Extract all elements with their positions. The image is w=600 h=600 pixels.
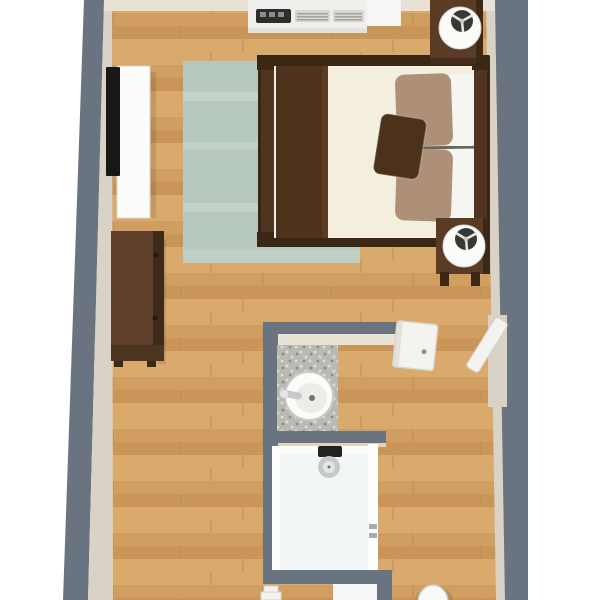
bathroom-top-wall <box>263 322 398 334</box>
tv-console <box>117 66 150 218</box>
nightstand-leg <box>440 272 449 286</box>
faucet-base <box>280 390 288 398</box>
table-lamp-bottom <box>443 225 485 267</box>
shower-glass-panel <box>368 444 378 572</box>
floorplan-render <box>0 0 600 600</box>
sheet-crease <box>415 147 477 148</box>
bathroom-top-wall-face <box>263 334 398 345</box>
ac-vent-slat <box>335 16 362 18</box>
dresser-front <box>111 345 164 361</box>
ac-button <box>278 12 284 17</box>
ac-vent-slat <box>335 13 362 15</box>
table-lamp-top <box>439 7 481 49</box>
ac-vent-slat <box>335 19 362 21</box>
ac-button <box>269 12 275 17</box>
accent-pillow <box>372 113 427 180</box>
dresser-side <box>153 231 164 361</box>
nightstand-leg <box>471 272 480 286</box>
wall-tv <box>106 67 120 176</box>
floorplan-canvas <box>0 0 600 600</box>
ac-vent-slat <box>297 16 328 18</box>
ac-vent-slat <box>297 13 328 15</box>
bathroom-door <box>392 321 438 371</box>
shower-curb <box>272 446 280 570</box>
glass-hinge <box>369 533 377 538</box>
sink-drain <box>309 395 315 401</box>
dresser-handle <box>154 253 159 258</box>
bathroom-wall-pillar <box>377 584 392 600</box>
ac-body-edge <box>248 28 367 33</box>
rug-streak <box>183 250 360 263</box>
bathroom-mid-wall <box>263 431 386 443</box>
bathroom-bottom-wall <box>263 570 392 584</box>
dresser-handle <box>153 316 158 321</box>
bed-post <box>257 55 274 70</box>
shower-head-dot <box>328 466 331 469</box>
brown-blanket <box>276 66 328 238</box>
ac-button <box>260 12 266 17</box>
ac-vent-slat <box>297 19 328 21</box>
glass-hinge <box>369 524 377 529</box>
door-jamb-base <box>261 592 281 600</box>
bed-post <box>257 232 274 247</box>
footboard <box>261 55 274 247</box>
dresser <box>111 231 166 367</box>
shower-arm <box>318 446 342 457</box>
blanket-fold <box>322 66 328 238</box>
dresser-foot <box>147 361 156 367</box>
ac-end-cap <box>367 0 401 26</box>
dresser-foot <box>114 361 123 367</box>
nightstand-edge <box>430 58 483 64</box>
nightstand-top <box>430 0 483 64</box>
room-below-opening <box>333 584 377 600</box>
